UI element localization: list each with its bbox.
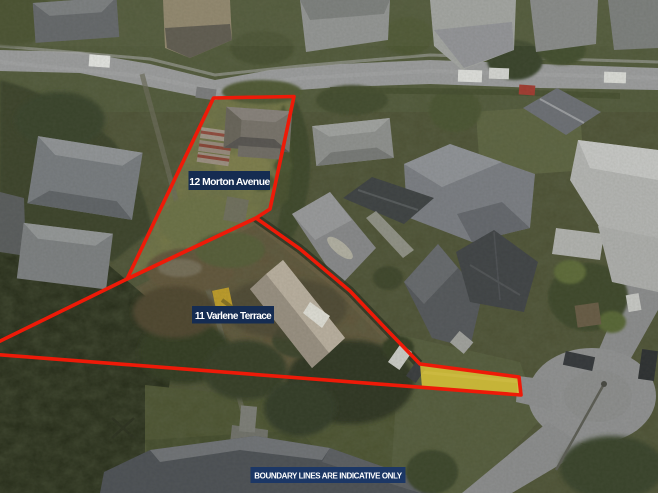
svg-text:11 Varlene Terrace: 11 Varlene Terrace xyxy=(195,311,272,322)
svg-text:12 Morton Avenue: 12 Morton Avenue xyxy=(189,177,270,188)
svg-text:BOUNDARY LINES ARE INDICATIVE: BOUNDARY LINES ARE INDICATIVE ONLY xyxy=(254,472,403,481)
